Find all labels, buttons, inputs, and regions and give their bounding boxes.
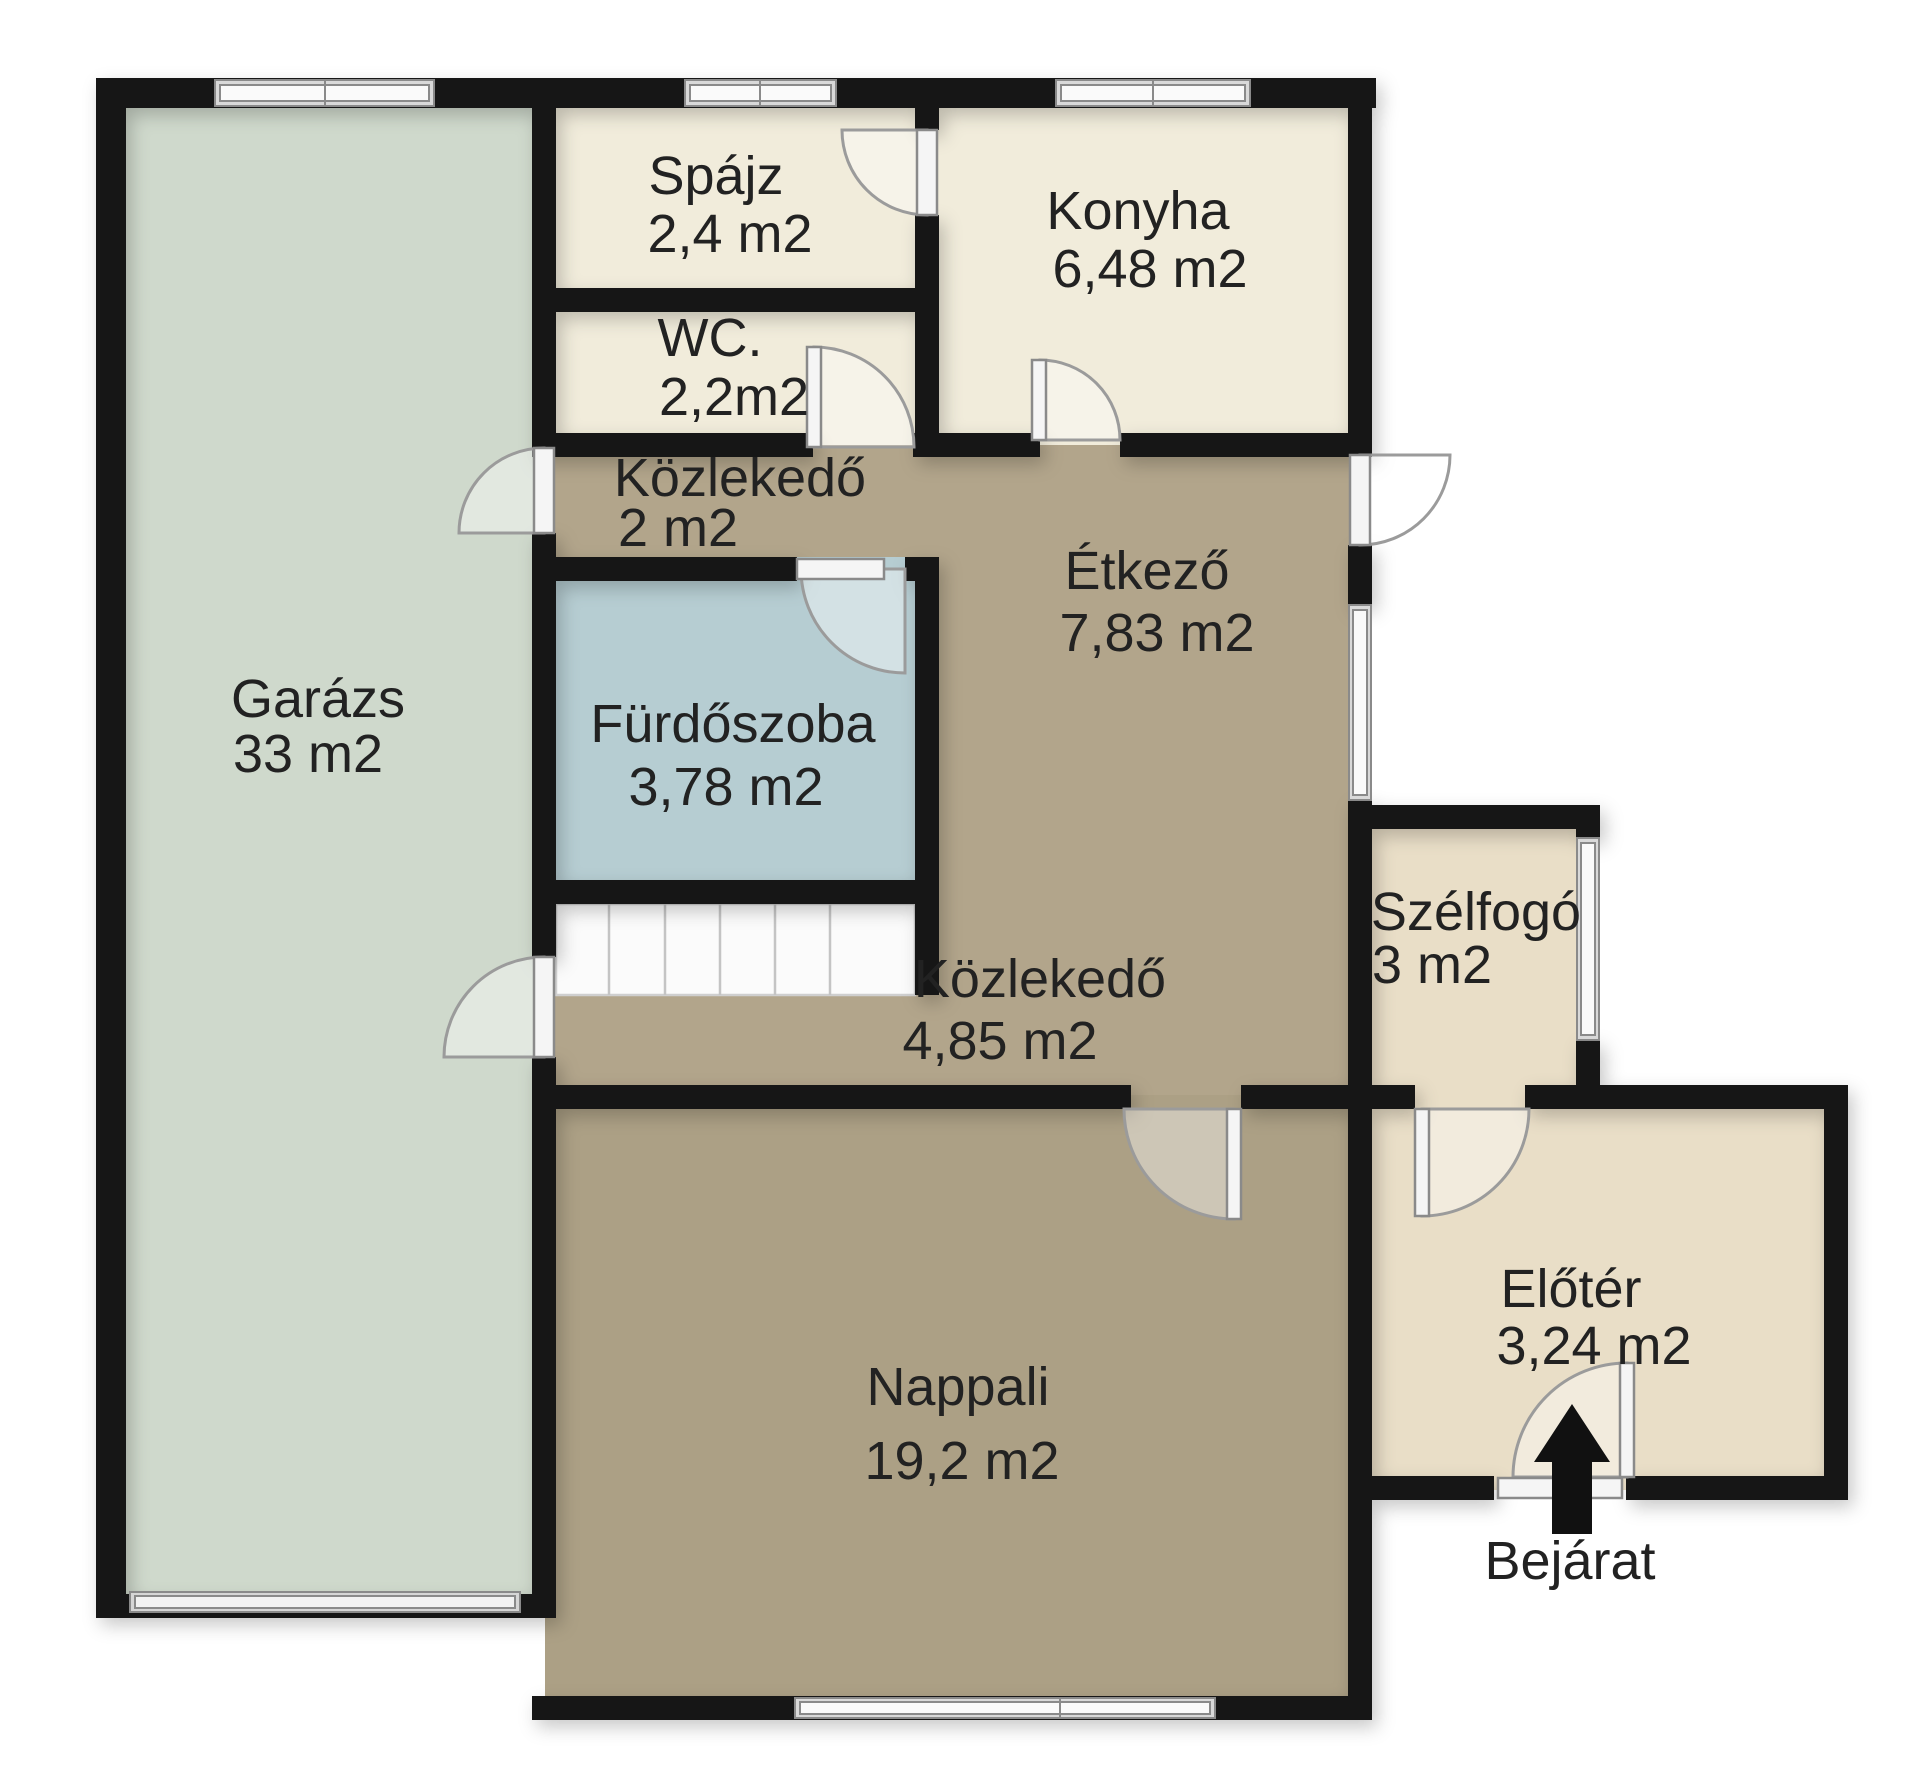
label-dining-name: Étkező <box>1064 541 1229 601</box>
windbreak-foyer-door-leaf <box>1415 1109 1429 1216</box>
label-bathroom-name: Fürdőszoba <box>590 694 876 754</box>
living-bottom-window <box>795 1698 1215 1718</box>
label-bathroom-area: 3,78 m2 <box>628 757 823 817</box>
wc-door-leaf <box>807 347 821 447</box>
label-wc-name: WC. <box>658 308 763 368</box>
label-garage-area: 33 m2 <box>233 724 383 784</box>
living-door-leaf <box>1227 1109 1241 1219</box>
side-exit-door-arc <box>1360 455 1450 545</box>
label-windbreak-area: 3 m2 <box>1372 935 1492 995</box>
label-entrance: Bejárat <box>1484 1531 1655 1591</box>
label-kitchen-name: Konyha <box>1046 181 1230 241</box>
dining-east-window <box>1349 605 1371 800</box>
garage-upper-door-leaf <box>534 448 554 533</box>
room-garage-floor <box>110 95 545 1605</box>
garage-lower-door-leaf <box>534 957 554 1057</box>
pantry-top-window <box>685 80 836 106</box>
label-hall-lower-area: 4,85 m2 <box>902 1011 1097 1071</box>
kitchen-top-window <box>1056 80 1250 106</box>
label-hall-lower-name: Közlekedő <box>914 949 1166 1009</box>
label-foyer-name: Előtér <box>1500 1259 1641 1319</box>
side-exit-door-leaf <box>1350 455 1370 545</box>
label-kitchen-area: 6,48 m2 <box>1052 239 1247 299</box>
label-garage-name: Garázs <box>231 669 405 729</box>
kitchen-door-leaf <box>1032 360 1046 440</box>
stairs <box>556 904 915 995</box>
label-foyer-area: 3,24 m2 <box>1496 1316 1691 1376</box>
label-dining-area: 7,83 m2 <box>1059 603 1254 663</box>
floor-plan-page: Garázs 33 m2 Spájz 2,4 m2 WC. 2,2m2 Kony… <box>0 0 1920 1775</box>
label-living-name: Nappali <box>866 1357 1049 1417</box>
label-pantry-area: 2,4 m2 <box>647 204 812 264</box>
floor-plan: Garázs 33 m2 Spájz 2,4 m2 WC. 2,2m2 Kony… <box>0 0 1920 1775</box>
garage-top-window <box>215 80 434 106</box>
garage-vehicle-door <box>130 1592 520 1612</box>
pantry-door-leaf <box>917 130 937 215</box>
label-wc-area: 2,2m2 <box>659 367 809 427</box>
label-windbreak-name: Szélfogó <box>1371 882 1581 942</box>
label-hall-upper-area: 2 m2 <box>618 498 738 558</box>
bathroom-door-leaf <box>797 559 884 579</box>
label-pantry-name: Spájz <box>648 146 783 206</box>
label-living-area: 19,2 m2 <box>864 1431 1059 1491</box>
entry-door-leaf <box>1620 1363 1634 1477</box>
